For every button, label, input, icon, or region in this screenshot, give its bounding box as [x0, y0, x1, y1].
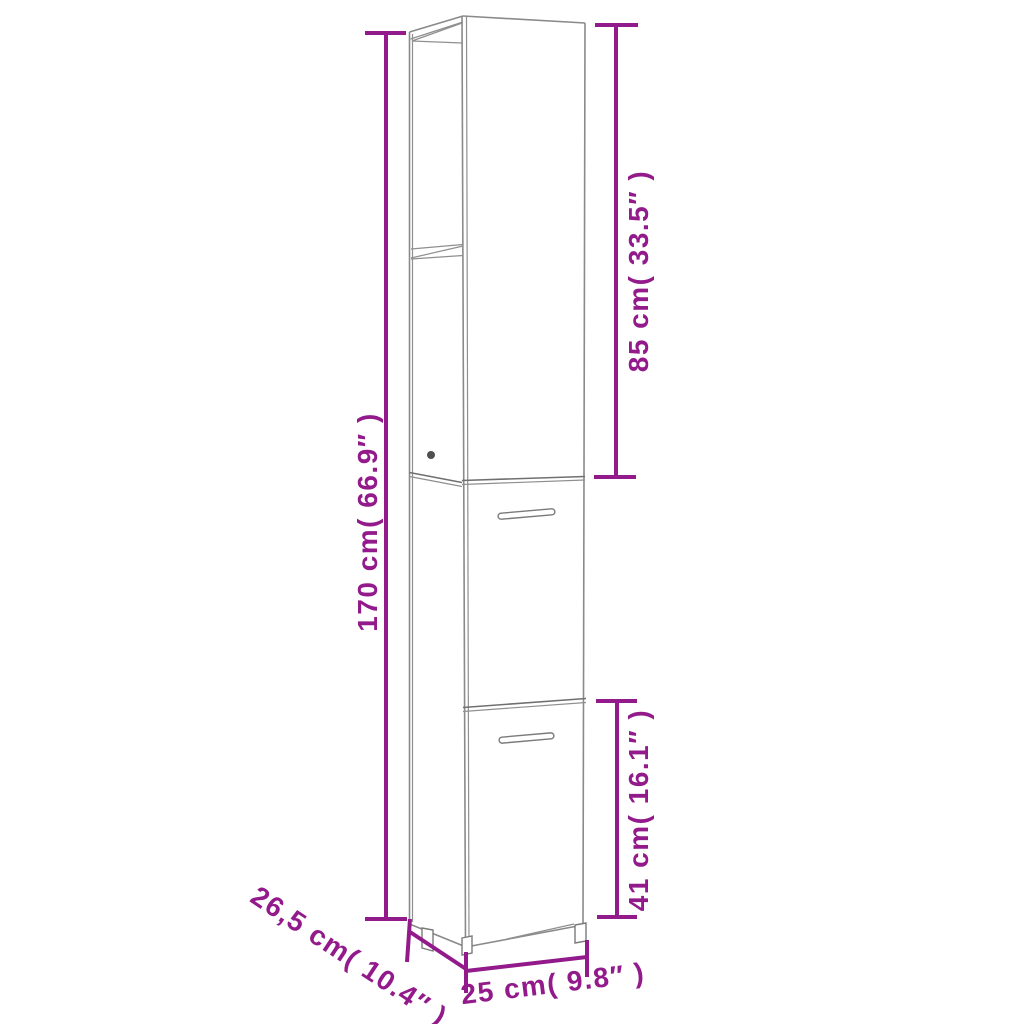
product-dimension-diagram: 170 cm( 66.9″ ) 85 cm( 33.5″ ) 41 cm( 16…	[0, 0, 1024, 1024]
door-gap-upper-line	[463, 699, 586, 708]
front-bottom-edge	[466, 925, 583, 947]
top-rail-bottom-line	[412, 41, 462, 43]
cabinet-drawing	[410, 16, 587, 955]
bottom-back-rail-line	[507, 924, 574, 939]
door-gap-lower-line	[463, 703, 586, 712]
dim-label-width: 25 cm( 9.8″ )	[459, 957, 647, 1010]
dim-label-total-height: 170 cm( 66.9″ )	[352, 412, 383, 632]
front-top-edge	[463, 16, 585, 23]
upper-door-handle	[498, 509, 555, 520]
dim-lower-door: 41 cm( 16.1″ )	[596, 701, 654, 917]
dimension-annotations: 170 cm( 66.9″ ) 85 cm( 33.5″ ) 41 cm( 16…	[245, 25, 654, 1024]
front-left-edge	[462, 16, 466, 947]
front-divider-line	[462, 477, 585, 481]
lower-door-handle	[499, 733, 554, 744]
cam-screw-dot	[427, 451, 435, 459]
dim-upper-section: 85 cm( 33.5″ )	[594, 25, 654, 477]
dim-label-lower-door: 41 cm( 16.1″ )	[623, 709, 654, 912]
foot-front-right	[575, 923, 586, 943]
dim-label-depth: 26,5 cm( 10.4″ )	[245, 880, 453, 1024]
cabinet-front-panel	[462, 16, 586, 947]
diagram-canvas: 170 cm( 66.9″ ) 85 cm( 33.5″ ) 41 cm( 16…	[0, 0, 1024, 1024]
cabinet-side-panel	[410, 16, 467, 947]
dim-total-height: 170 cm( 66.9″ )	[352, 33, 407, 919]
dim-depth: 26,5 cm( 10.4″ )	[245, 880, 466, 1024]
dim-width: 25 cm( 9.8″ )	[459, 940, 647, 1010]
dim-tick-depth-start	[407, 919, 410, 962]
front-left-edge-inner	[467, 17, 470, 947]
top-rail-diagonal	[412, 23, 462, 41]
dim-label-upper-section: 85 cm( 33.5″ )	[623, 170, 654, 373]
front-right-edge	[583, 23, 585, 925]
dim-line-depth	[410, 932, 466, 969]
